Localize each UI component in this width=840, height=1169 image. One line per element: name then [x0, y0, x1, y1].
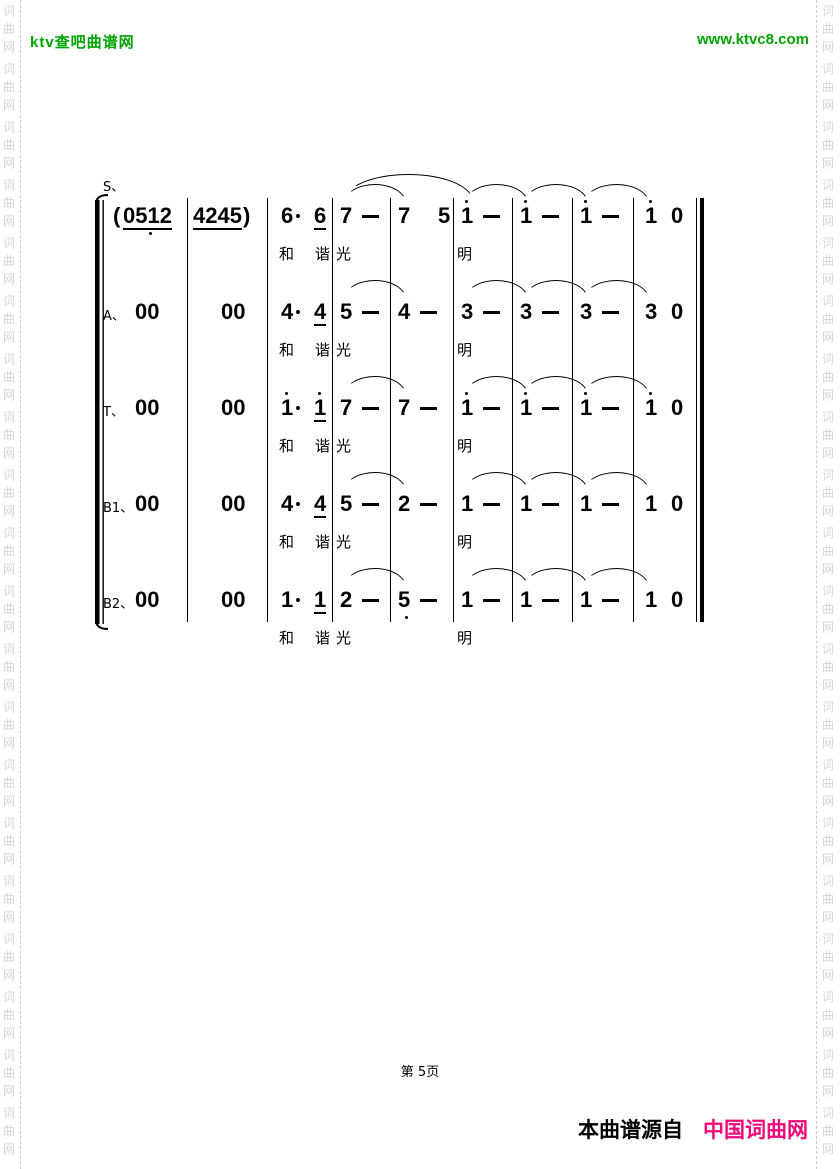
barline: [332, 198, 333, 622]
note-token: 00: [221, 493, 245, 515]
voice-label-t: T、: [103, 401, 124, 420]
note-token: 0: [671, 493, 683, 515]
lyric-syllable: 光: [336, 531, 351, 552]
lyric-syllable: 明: [457, 531, 472, 552]
note-token: ): [243, 205, 250, 227]
watermark-dashed-line-left: [20, 0, 21, 1169]
watermark-character: 词: [2, 350, 16, 368]
augmentation-dot: [296, 310, 300, 314]
tie-arc: [524, 472, 588, 491]
watermark-character: 词: [2, 234, 16, 252]
watermark-character: 曲: [821, 1122, 835, 1140]
slur-arc: [344, 174, 473, 201]
watermark-group: 词曲网: [821, 698, 835, 752]
watermark-group: 词曲网: [821, 930, 835, 984]
tie-arc: [524, 184, 588, 203]
watermark-character: 网: [2, 734, 16, 752]
watermark-group: 词曲网: [821, 292, 835, 346]
note-token: 4: [281, 301, 293, 323]
watermark-character: 词: [821, 756, 835, 774]
watermark-character: 网: [821, 502, 835, 520]
lyric-syllable: 谐: [315, 531, 330, 552]
note-token: 6: [281, 205, 293, 227]
watermark-character: 词: [821, 698, 835, 716]
watermark-character: 网: [2, 38, 16, 56]
tie-arc: [584, 280, 649, 299]
watermark-character: 网: [2, 792, 16, 810]
watermark-character: 词: [2, 292, 16, 310]
watermark-group: 词曲网: [2, 60, 16, 114]
watermark-group: 词曲网: [821, 872, 835, 926]
note-token: 0: [671, 301, 683, 323]
watermark-character: 曲: [821, 426, 835, 444]
sheet-page: 词曲网词曲网词曲网词曲网词曲网词曲网词曲网词曲网词曲网词曲网词曲网词曲网词曲网词…: [0, 0, 840, 1169]
watermark-group: 词曲网: [2, 930, 16, 984]
note-token: 1: [281, 397, 293, 419]
tie-arc: [465, 376, 528, 395]
note-token: 6: [314, 205, 326, 230]
watermark-character: 词: [2, 60, 16, 78]
lyric-syllable: 谐: [315, 339, 330, 360]
tie-arc: [465, 568, 528, 587]
watermark-group: 词曲网: [2, 176, 16, 230]
watermark-character: 网: [2, 850, 16, 868]
watermark-character: 曲: [2, 1006, 16, 1024]
barline: [572, 198, 573, 622]
watermark-character: 词: [2, 408, 16, 426]
watermark-group: 词曲网: [2, 234, 16, 288]
source-line: 本曲谱源自中国词曲网: [578, 1114, 808, 1144]
watermark-group: 词曲网: [2, 582, 16, 636]
lyric-syllable: 和: [279, 243, 294, 264]
octave-dot-below: [149, 232, 152, 235]
watermark-character: 网: [821, 966, 835, 984]
source-site-link[interactable]: 中国词曲网: [703, 1118, 808, 1142]
watermark-character: 网: [2, 328, 16, 346]
tie-arc: [584, 376, 649, 395]
watermark-character: 曲: [2, 78, 16, 96]
watermark-character: 网: [821, 328, 835, 346]
watermark-character: 词: [2, 872, 16, 890]
watermark-character: 网: [821, 908, 835, 926]
lyric-syllable: 谐: [315, 435, 330, 456]
tie-arc: [584, 184, 649, 203]
watermark-character: 网: [2, 270, 16, 288]
note-token: 5: [398, 589, 410, 611]
watermark-character: 曲: [821, 890, 835, 908]
watermark-character: 曲: [2, 774, 16, 792]
watermark-character: 网: [821, 734, 835, 752]
watermark-dashed-line-right: [816, 0, 817, 1169]
voice-label-s: S、: [103, 176, 124, 195]
page-number: 第 5页: [0, 1061, 840, 1080]
watermark-character: 网: [2, 1024, 16, 1042]
watermark-character: 网: [821, 1082, 835, 1100]
watermark-column-left: 词曲网词曲网词曲网词曲网词曲网词曲网词曲网词曲网词曲网词曲网词曲网词曲网词曲网词…: [2, 2, 16, 1162]
watermark-character: 词: [2, 814, 16, 832]
note-token: 4245: [193, 205, 242, 230]
watermark-character: 词: [821, 60, 835, 78]
watermark-character: 曲: [821, 542, 835, 560]
note-token: 4: [314, 301, 326, 326]
watermark-column-right: 词曲网词曲网词曲网词曲网词曲网词曲网词曲网词曲网词曲网词曲网词曲网词曲网词曲网词…: [821, 2, 835, 1162]
watermark-character: 词: [2, 582, 16, 600]
tie-arc: [465, 472, 528, 491]
watermark-character: 网: [821, 1140, 835, 1158]
watermark-character: 曲: [2, 658, 16, 676]
watermark-character: 词: [2, 988, 16, 1006]
dash-extension: [602, 215, 619, 218]
note-token: 7: [340, 397, 352, 419]
watermark-character: 曲: [821, 194, 835, 212]
dash-extension: [483, 599, 500, 602]
watermark-group: 词曲网: [2, 408, 16, 462]
note-token: (: [113, 205, 120, 227]
watermark-character: 词: [2, 698, 16, 716]
tie-arc: [524, 568, 588, 587]
watermark-group: 词曲网: [821, 234, 835, 288]
note-token: 2: [398, 493, 410, 515]
note-token: 3: [461, 301, 473, 323]
watermark-character: 曲: [2, 832, 16, 850]
dash-extension: [602, 599, 619, 602]
watermark-group: 词曲网: [821, 582, 835, 636]
watermark-character: 词: [821, 1104, 835, 1122]
dash-extension: [542, 599, 559, 602]
note-token: 00: [135, 397, 159, 419]
watermark-group: 词曲网: [2, 756, 16, 810]
watermark-character: 曲: [2, 20, 16, 38]
watermark-character: 网: [2, 212, 16, 230]
note-token: 7: [398, 205, 410, 227]
watermark-character: 网: [2, 154, 16, 172]
watermark-character: 网: [821, 386, 835, 404]
watermark-group: 词曲网: [2, 292, 16, 346]
note-token: 0: [671, 397, 683, 419]
watermark-group: 词曲网: [821, 350, 835, 404]
watermark-character: 曲: [2, 368, 16, 386]
dash-extension: [420, 599, 437, 602]
watermark-group: 词曲网: [821, 640, 835, 694]
octave-dot-below: [405, 616, 408, 619]
tie-arc: [584, 472, 649, 491]
watermark-character: 曲: [2, 194, 16, 212]
watermark-character: 曲: [821, 716, 835, 734]
barline: [267, 198, 268, 622]
dash-extension: [362, 407, 379, 410]
note-token: 1: [461, 397, 473, 419]
watermark-character: 词: [821, 292, 835, 310]
watermark-character: 词: [2, 2, 16, 20]
watermark-character: 曲: [821, 136, 835, 154]
dash-extension: [420, 407, 437, 410]
watermark-group: 词曲网: [821, 524, 835, 578]
lyric-syllable: 和: [279, 339, 294, 360]
note-token: 7: [340, 205, 352, 227]
octave-dot-above: [649, 392, 652, 395]
watermark-group: 词曲网: [2, 524, 16, 578]
source-prefix-text: 本曲谱源自: [578, 1118, 683, 1142]
watermark-character: 曲: [821, 78, 835, 96]
watermark-character: 词: [821, 234, 835, 252]
watermark-character: 词: [821, 582, 835, 600]
lyric-syllable: 谐: [315, 243, 330, 264]
dash-extension: [602, 311, 619, 314]
watermark-group: 词曲网: [2, 640, 16, 694]
watermark-character: 词: [2, 1104, 16, 1122]
watermark-character: 词: [2, 176, 16, 194]
barline: [390, 198, 391, 622]
lyric-syllable: 谐: [315, 627, 330, 648]
dash-extension: [362, 503, 379, 506]
watermark-character: 网: [2, 618, 16, 636]
note-token: 1: [520, 589, 532, 611]
watermark-character: 词: [821, 466, 835, 484]
watermark-character: 曲: [2, 600, 16, 618]
dash-extension: [483, 311, 500, 314]
note-token: 5: [340, 493, 352, 515]
note-token: 4: [281, 493, 293, 515]
lyric-syllable: 明: [457, 627, 472, 648]
watermark-character: 曲: [821, 1006, 835, 1024]
note-token: 5: [340, 301, 352, 323]
tie-arc: [524, 280, 588, 299]
watermark-character: 词: [2, 118, 16, 136]
watermark-character: 网: [821, 212, 835, 230]
watermark-character: 网: [821, 618, 835, 636]
watermark-character: 词: [821, 640, 835, 658]
dash-extension: [542, 311, 559, 314]
watermark-group: 词曲网: [2, 118, 16, 172]
watermark-character: 网: [821, 850, 835, 868]
watermark-character: 网: [2, 386, 16, 404]
watermark-character: 曲: [821, 252, 835, 270]
octave-dot-above: [649, 200, 652, 203]
watermark-character: 词: [2, 756, 16, 774]
barline: [453, 198, 454, 622]
tie-arc: [344, 280, 406, 299]
watermark-character: 曲: [821, 832, 835, 850]
note-token: 0512: [123, 205, 172, 230]
watermark-group: 词曲网: [2, 872, 16, 926]
watermark-character: 词: [2, 640, 16, 658]
augmentation-dot: [296, 502, 300, 506]
watermark-group: 词曲网: [821, 988, 835, 1042]
dash-extension: [362, 311, 379, 314]
note-token: 0: [671, 589, 683, 611]
lyric-syllable: 明: [457, 243, 472, 264]
lyric-syllable: 和: [279, 627, 294, 648]
watermark-group: 词曲网: [821, 1104, 835, 1158]
barline: [187, 198, 188, 622]
octave-dot-above: [318, 392, 321, 395]
note-token: 00: [221, 301, 245, 323]
note-token: 4: [398, 301, 410, 323]
site-name-link[interactable]: ktv查吧曲谱网: [30, 31, 135, 52]
lyric-syllable: 和: [279, 531, 294, 552]
note-token: 1: [580, 397, 592, 419]
dash-extension: [542, 407, 559, 410]
augmentation-dot: [296, 406, 300, 410]
watermark-character: 曲: [821, 20, 835, 38]
voice-label-b2: B2、: [103, 593, 133, 612]
watermark-character: 曲: [2, 484, 16, 502]
augmentation-dot: [296, 214, 300, 218]
watermark-character: 词: [821, 350, 835, 368]
watermark-character: 网: [2, 444, 16, 462]
dash-extension: [483, 407, 500, 410]
note-token: 0: [671, 205, 683, 227]
note-token: 00: [135, 589, 159, 611]
final-barline-thick: [700, 198, 704, 622]
watermark-character: 网: [821, 154, 835, 172]
watermark-character: 曲: [821, 484, 835, 502]
watermark-character: 网: [2, 1140, 16, 1158]
lyric-syllable: 明: [457, 339, 472, 360]
note-token: 1: [461, 493, 473, 515]
dash-extension: [602, 503, 619, 506]
watermark-group: 词曲网: [2, 698, 16, 752]
watermark-character: 网: [821, 676, 835, 694]
note-token: 00: [221, 589, 245, 611]
watermark-character: 曲: [821, 948, 835, 966]
watermark-character: 曲: [2, 890, 16, 908]
watermark-character: 网: [2, 502, 16, 520]
note-token: 00: [135, 493, 159, 515]
dash-extension: [483, 503, 500, 506]
watermark-character: 曲: [821, 774, 835, 792]
watermark-character: 词: [821, 872, 835, 890]
note-token: 4: [314, 493, 326, 518]
watermark-group: 词曲网: [821, 2, 835, 56]
watermark-character: 网: [2, 1082, 16, 1100]
note-token: 1: [580, 493, 592, 515]
note-token: 1: [520, 397, 532, 419]
dash-extension: [542, 503, 559, 506]
lyric-syllable: 和: [279, 435, 294, 456]
note-token: 1: [520, 205, 532, 227]
lyric-syllable: 明: [457, 435, 472, 456]
dash-extension: [362, 215, 379, 218]
watermark-character: 曲: [2, 310, 16, 328]
voice-label-a: A、: [103, 305, 125, 324]
watermark-character: 曲: [2, 136, 16, 154]
dash-extension: [602, 407, 619, 410]
note-token: 00: [135, 301, 159, 323]
watermark-character: 网: [821, 560, 835, 578]
watermark-character: 曲: [2, 252, 16, 270]
watermark-group: 词曲网: [821, 756, 835, 810]
watermark-character: 网: [2, 560, 16, 578]
lyric-syllable: 光: [336, 243, 351, 264]
tie-arc: [584, 568, 649, 587]
tie-arc: [344, 568, 406, 587]
watermark-character: 网: [821, 792, 835, 810]
watermark-character: 网: [821, 270, 835, 288]
note-token: 3: [645, 301, 657, 323]
watermark-character: 曲: [2, 542, 16, 560]
watermark-character: 曲: [2, 1122, 16, 1140]
lyric-syllable: 光: [336, 339, 351, 360]
watermark-character: 词: [2, 466, 16, 484]
watermark-group: 词曲网: [2, 1104, 16, 1158]
score-system: S、(05124245)6677511110和谐光明A、000044543333…: [95, 170, 715, 650]
site-url-link[interactable]: www.ktvc8.com: [697, 31, 809, 48]
watermark-character: 词: [2, 930, 16, 948]
watermark-character: 词: [2, 524, 16, 542]
augmentation-dot: [296, 598, 300, 602]
lyric-syllable: 光: [336, 435, 351, 456]
note-token: 1: [314, 589, 326, 614]
dash-extension: [420, 311, 437, 314]
watermark-character: 网: [821, 38, 835, 56]
voice-label-b1: B1、: [103, 497, 133, 516]
watermark-character: 词: [821, 524, 835, 542]
watermark-character: 曲: [2, 948, 16, 966]
watermark-character: 曲: [821, 368, 835, 386]
tie-arc: [524, 376, 588, 395]
watermark-group: 词曲网: [821, 118, 835, 172]
note-token: 1: [645, 493, 657, 515]
note-token: 1: [580, 205, 592, 227]
watermark-group: 词曲网: [821, 176, 835, 230]
note-token: 00: [221, 397, 245, 419]
watermark-character: 词: [821, 814, 835, 832]
watermark-character: 词: [821, 118, 835, 136]
note-token: 1: [580, 589, 592, 611]
note-token: 1: [461, 205, 473, 227]
tie-arc: [465, 184, 528, 203]
note-token: 3: [580, 301, 592, 323]
watermark-group: 词曲网: [2, 988, 16, 1042]
watermark-group: 词曲网: [2, 814, 16, 868]
watermark-group: 词曲网: [2, 350, 16, 404]
watermark-character: 网: [821, 96, 835, 114]
watermark-character: 网: [821, 1024, 835, 1042]
note-token: 1: [520, 493, 532, 515]
watermark-character: 词: [821, 176, 835, 194]
note-token: 2: [340, 589, 352, 611]
tie-arc: [465, 280, 528, 299]
barline: [512, 198, 513, 622]
watermark-character: 网: [821, 444, 835, 462]
watermark-group: 词曲网: [821, 814, 835, 868]
dash-extension: [483, 215, 500, 218]
watermark-character: 曲: [2, 716, 16, 734]
note-token: 3: [520, 301, 532, 323]
note-token: 7: [398, 397, 410, 419]
watermark-group: 词曲网: [821, 60, 835, 114]
watermark-character: 词: [821, 2, 835, 20]
tie-arc: [344, 472, 406, 491]
watermark-character: 网: [2, 908, 16, 926]
watermark-character: 网: [2, 96, 16, 114]
watermark-character: 曲: [821, 658, 835, 676]
dash-extension: [420, 503, 437, 506]
note-token: 1: [314, 397, 326, 422]
note-token: 1: [645, 397, 657, 419]
watermark-character: 曲: [2, 426, 16, 444]
watermark-character: 词: [821, 408, 835, 426]
note-token: 1: [645, 589, 657, 611]
note-token: 1: [645, 205, 657, 227]
watermark-character: 词: [821, 930, 835, 948]
tie-arc: [344, 376, 406, 395]
dash-extension: [362, 599, 379, 602]
watermark-group: 词曲网: [2, 2, 16, 56]
note-token: 5: [438, 205, 450, 227]
final-barline-thin: [696, 198, 697, 622]
